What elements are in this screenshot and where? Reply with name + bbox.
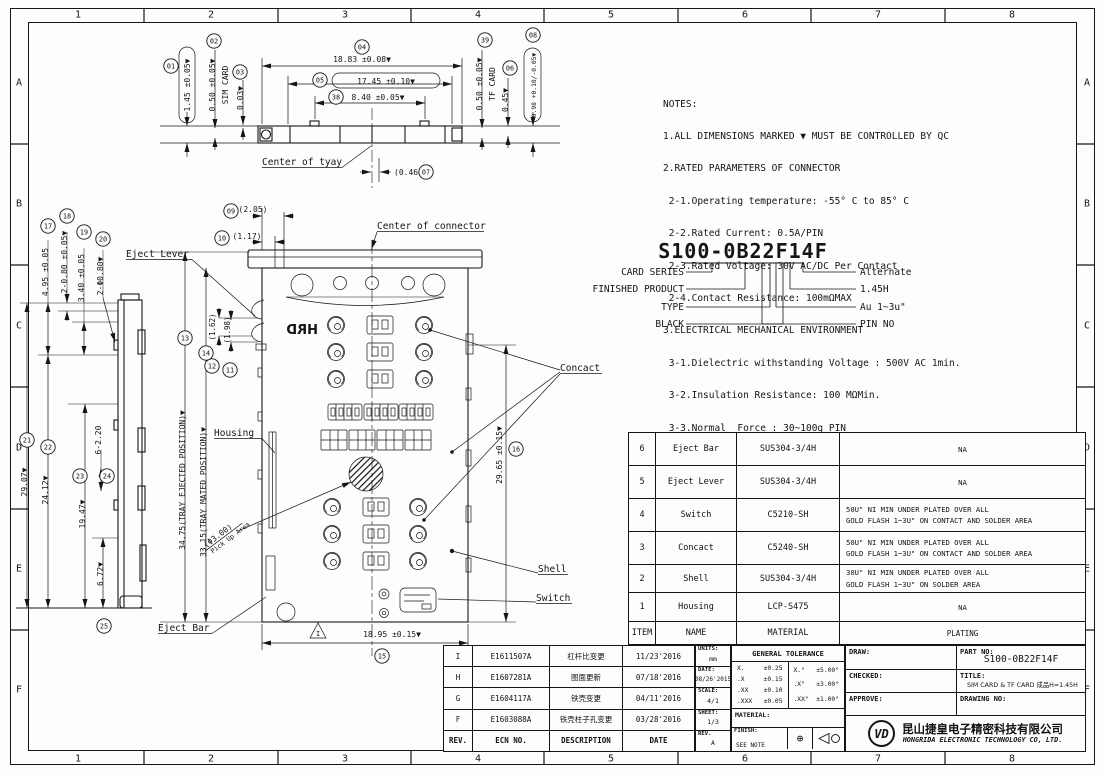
finish-label: FINISH: [734, 729, 758, 735]
date-label: DATE: [698, 668, 715, 674]
units-cell: UNITS: mm [696, 646, 730, 666]
tol-sym: X.° [794, 667, 805, 674]
dim-23-label: 19.47▼ [78, 499, 87, 528]
title-block: DRAW: PART NO: S100-0B22F14F CHECKED: TI… [845, 645, 1086, 752]
balloon-02: 02 [207, 34, 221, 48]
eject-lever-label: Eject Lever [126, 249, 189, 260]
main-view: HRD [126, 205, 602, 656]
rev-ecn: E1607281A [473, 667, 549, 687]
dim-02-label: 0.50 ±0.05▼ [208, 58, 217, 111]
part-no-cell: PART NO: S100-0B22F14F [957, 646, 1085, 669]
top-view: 18.83 ±0.08▼ 17.45 ±0.10▼ 8.40 ±0.05▼ 1.… [160, 47, 560, 188]
balloon-16: 16 [509, 442, 523, 456]
checked-cell: CHECKED: [846, 670, 956, 692]
parts-header-name: NAME [656, 622, 736, 644]
svg-text:04: 04 [358, 44, 366, 52]
balloon-07: 07 [419, 165, 433, 179]
draw-cell: DRAW: [846, 646, 956, 669]
tol-val: ±0.25 [764, 665, 783, 672]
note-line: 2.RATED PARAMETERS OF CONNECTOR [663, 164, 960, 175]
tol-sym: .X [737, 676, 745, 683]
plating-line: GOLD FLASH 1~3U" ON CONTACT AND SOLDER A… [846, 515, 1032, 526]
housing-label: Housing [214, 428, 254, 439]
parts-plating: 50U" NI MIN UNDER PLATED OVER ALL GOLD F… [840, 499, 1085, 531]
parts-header-material: MATERIAL [737, 622, 839, 644]
balloon-11: 11 [223, 363, 237, 377]
switch-label: Switch [536, 593, 570, 604]
tol-sym: X. [737, 665, 745, 672]
tol-sym: .XX° [794, 696, 809, 703]
note-line: 2-2.Rated Current: 0.5A/PIN [663, 229, 960, 240]
svg-text:18: 18 [63, 213, 71, 221]
parts-material: LCP-S475 [737, 593, 839, 621]
rev-date: 03/28'2016 [623, 710, 694, 730]
tol-sym: .XXX [737, 698, 752, 705]
rev-cell: REV. A [696, 731, 730, 751]
parts-plating: 50U" NI MIN UNDER PLATED OVER ALL GOLD F… [840, 532, 1085, 564]
sheet-value: 1/3 [707, 718, 719, 726]
parts-material: SUS304-3/4H [737, 466, 839, 498]
sheet-cell: SHEET: 1/3 [696, 710, 730, 730]
svg-text:03: 03 [236, 69, 244, 77]
note-line: 3-2.Insulation Resistance: 100 MΩMin. [663, 391, 960, 402]
parts-name: Switch [656, 499, 736, 531]
dim-01-label: 1.45 ±0.05▼ [183, 58, 192, 111]
tol-val: ±0.15 [764, 676, 783, 683]
rev-code: I [444, 646, 472, 666]
rev-header-description: DESCRIPTION [550, 731, 622, 751]
rev-description: 杠杆比变更 [550, 646, 622, 666]
parts-material: SUS304-3/4H [737, 433, 839, 465]
drawing-no-cell: DRAWING NO: [957, 693, 1085, 715]
balloon-12: 12 [205, 359, 219, 373]
svg-text:05: 05 [316, 77, 324, 85]
dim-05-label: 17.45 ±0.10▼ [357, 77, 415, 86]
connector-body [262, 268, 468, 622]
parts-name: Eject Bar [656, 433, 736, 465]
datum-target-symbol-icon: ⊕ [788, 728, 813, 749]
dim-13-label: 34.75(TRAY EJECTED POSITION)▼ [178, 410, 187, 550]
parts-item: 4 [629, 499, 655, 531]
svg-text:19: 19 [80, 229, 88, 237]
company-logo-icon: VD [868, 720, 895, 747]
plating-line: 30U" NI MIN UNDER PLATED OVER ALL [846, 567, 989, 578]
rev-ecn: E1611507A [473, 646, 549, 666]
material-label: MATERIAL: [732, 709, 844, 728]
svg-text:25: 25 [100, 623, 108, 631]
balloon-19: 19 [77, 225, 91, 239]
parts-plating: 30U" NI MIN UNDER PLATED OVER ALL GOLD F… [840, 565, 1085, 592]
tray-bezel [248, 250, 482, 268]
title-cell: TITLE: SIM CARD & TF CARD 成品H=1.45H [957, 670, 1085, 692]
svg-text:11: 11 [226, 367, 234, 375]
parts-plating: NA [840, 466, 1085, 498]
svg-text:01: 01 [167, 63, 175, 71]
dim-39-label: 0.50 ±0.05▼ [475, 57, 484, 110]
svg-text:38: 38 [332, 94, 340, 102]
dim-20-label: 2-Φ0.80▼ [96, 257, 105, 296]
dim-10-label: (1.17) [233, 232, 262, 241]
balloon-05: 05 [313, 73, 327, 87]
profile-body [258, 121, 462, 143]
rev-ecn: E1603088A [473, 710, 549, 730]
title-label: TITLE: [957, 670, 985, 680]
drawing-sheet: 1 2 3 4 5 6 7 8 1 2 3 4 5 6 7 8 A B C D … [0, 0, 1105, 774]
note-line: 2-1.Operating temperature: -55° C to 85°… [663, 197, 960, 208]
dim-21-label: 29.07▼ [20, 467, 29, 496]
tolerance-title: GENERAL TOLERANCE [732, 646, 844, 662]
balloon-15: 15 [375, 649, 389, 663]
balloon-21: 21 [20, 433, 34, 447]
svg-text:12: 12 [208, 363, 216, 371]
approve-cell: APPROVE: [846, 693, 956, 715]
parts-plating: NA [840, 433, 1085, 465]
center-of-connector-label: Center of connector [377, 221, 486, 232]
dim-16-label: 29.65 ±0.15▼ [495, 426, 504, 484]
svg-text:06: 06 [506, 65, 514, 73]
rev-ecn: E1604117A [473, 688, 549, 708]
rev-code: G [444, 688, 472, 708]
parts-material: SUS304-3/4H [737, 565, 839, 592]
balloon-06: 06 [503, 61, 517, 75]
svg-text:07: 07 [422, 169, 430, 177]
plating-line: 50U" NI MIN UNDER PLATED OVER ALL [846, 537, 989, 548]
tol-val: ±5.00° [816, 667, 839, 674]
note-line: 3-1.Dielectric withstanding Voltage : 50… [663, 359, 960, 370]
svg-text:21: 21 [23, 437, 31, 445]
tol-val: ±0.05 [764, 698, 783, 705]
dim-18-label: 2-0.80 ±0.05▼ [60, 231, 69, 294]
svg-text:10: 10 [218, 235, 226, 243]
note-line: 2-4.Contact Resistance: 100mΩMAX [663, 294, 960, 305]
rev-date: 04/11'2016 [623, 688, 694, 708]
title-value: SIM CARD & TF CARD 成品H=1.45H [967, 680, 1078, 689]
rev-header-rev: REV. [444, 731, 472, 751]
balloon-22: 22 [41, 440, 55, 454]
rev-header-ecn: ECN NO. [473, 731, 549, 751]
dim-15-label: 18.95 ±0.15▼ [363, 630, 421, 639]
note-line: 1.ALL DIMENSIONS MARKED ▼ MUST BE CONTRO… [663, 132, 960, 143]
parts-name: Eject Lever [656, 466, 736, 498]
parts-item: 5 [629, 466, 655, 498]
dim-38-label: 8.40 ±0.05▼ [352, 93, 405, 102]
scale-cell: SCALE: 4/1 [696, 688, 730, 708]
dim-14-label: 33.15(TRAY MATED POSITION)▼ [199, 427, 208, 557]
finish-cell: FINISH: SEE NOTE [732, 728, 788, 749]
svg-text:09: 09 [227, 208, 235, 216]
balloon-25: 25 [97, 619, 111, 633]
parts-material: C5210-SH [737, 499, 839, 531]
balloon-20: 20 [96, 232, 110, 246]
balloon-39: 39 [478, 33, 492, 47]
svg-text:I: I [316, 630, 320, 638]
checked-label: CHECKED: [846, 670, 883, 680]
company-name-en: HONGRIDA ELECTRONIC TECHNOLOGY CO, LTD. [903, 736, 1063, 744]
dim-06-label: 0.45▼ [501, 88, 510, 112]
side-view: 4.95 ±0.05 2-0.80 ±0.05▼ 3.40 ±0.05 2-Φ0… [16, 231, 152, 608]
balloon-24: 24 [100, 469, 114, 483]
dim-12-label: (1.62) [208, 313, 217, 340]
dim-02-note: SIM CARD [221, 66, 230, 105]
note-line: 3.ELECTRICAL MECHANICAL ENVIRONMENT [663, 326, 960, 337]
concact-label: Concact [560, 363, 600, 374]
units-value: mm [709, 655, 717, 663]
tolerance-angle-col: X.°±5.00° .X°±3.00° .XX°±1.00° [789, 662, 845, 708]
center-of-tray-label: Center of tyay [262, 157, 342, 168]
tolerance-linear-col: X.±0.25 .X±0.15 .XX±0.10 .XXX±0.05 [732, 662, 789, 708]
draw-label: DRAW: [846, 646, 870, 656]
rev-description: 图面更新 [550, 667, 622, 687]
dim-08-label: 0.98 +0.10/-0.05▼ [531, 53, 538, 118]
scale-label: SCALE: [698, 689, 718, 695]
svg-text:02: 02 [210, 38, 218, 46]
parts-plating: NA [840, 593, 1085, 621]
svg-text:22: 22 [44, 444, 52, 452]
balloon-14: 14 [199, 346, 213, 360]
dim-22-label: 24.12▼ [41, 475, 50, 504]
dim-11-label: (1.98) [223, 316, 232, 343]
dim-19-label: 3.40 ±0.05 [77, 254, 86, 302]
dim-04-label: 18.83 ±0.08▼ [333, 55, 391, 64]
balloon-03: 03 [233, 65, 247, 79]
dim-17-label: 4.95 ±0.05 [41, 248, 50, 296]
svg-text:08: 08 [529, 32, 537, 40]
dim-25-label: 6.72▼ [96, 562, 105, 586]
balloon-09: 09 [224, 204, 238, 218]
rev-description: 铁壳柱子孔变更 [550, 710, 622, 730]
plating-line: GOLD FLASH 1~3U" ON SOLDER AREA [846, 579, 980, 590]
parts-material: C5240-SH [737, 532, 839, 564]
revision-triangle: I [310, 623, 326, 638]
balloon-23: 23 [73, 469, 87, 483]
company-band: VD 昆山捷皇电子精密科技有限公司 HONGRIDA ELECTRONIC TE… [846, 716, 1085, 751]
dim-39-note: TF CARD [488, 67, 497, 101]
rev-header-date: DATE [623, 731, 694, 751]
tolerance-block: GENERAL TOLERANCE X.±0.25 .X±0.15 .XX±0.… [731, 645, 845, 752]
balloon-17: 17 [41, 219, 55, 233]
parts-header-plating: PLATING [840, 622, 1085, 644]
rev-value: A [711, 739, 715, 747]
parts-name: Housing [656, 593, 736, 621]
parts-item: 6 [629, 433, 655, 465]
units-label: UNITS: [698, 647, 718, 653]
svg-text:16: 16 [512, 446, 520, 454]
tol-sym: .X° [794, 681, 805, 688]
part-no-value: S100-0B22F14F [957, 654, 1085, 665]
rev-code: F [444, 710, 472, 730]
rev-date: 07/18'2016 [623, 667, 694, 687]
parts-item: 2 [629, 565, 655, 592]
svg-text:13: 13 [181, 335, 189, 343]
tol-val: ±3.00° [816, 681, 839, 688]
svg-text:17: 17 [44, 223, 52, 231]
svg-text:39: 39 [481, 37, 489, 45]
note-line: NOTES: [663, 100, 960, 111]
tol-sym: .XX [737, 687, 748, 694]
svg-text:23: 23 [76, 473, 84, 481]
rev-code: H [444, 667, 472, 687]
dim-09-label: (2.05) [239, 205, 268, 214]
scale-value: 4/1 [707, 697, 719, 705]
dim-03-label: 0.03▼ [236, 86, 245, 110]
balloon-18: 18 [60, 209, 74, 223]
dim-24-label: 6-2.20 [94, 425, 103, 454]
parts-item: 1 [629, 593, 655, 621]
balloon-10: 10 [215, 231, 229, 245]
rev-description: 铁壳变更 [550, 688, 622, 708]
date-cell: DATE: 08/26'2015 [696, 667, 730, 687]
info-column: UNITS: mm DATE: 08/26'2015 SCALE: 4/1 SH… [695, 645, 731, 752]
parts-name: Shell [656, 565, 736, 592]
finish-value: SEE NOTE [736, 742, 765, 749]
svg-text:24: 24 [103, 473, 111, 481]
balloon-08: 08 [526, 28, 540, 42]
rev-date: 11/23'2016 [623, 646, 694, 666]
side-body [114, 294, 146, 608]
approve-label: APPROVE: [846, 693, 883, 703]
tol-val: ±1.00° [816, 696, 839, 703]
projection-symbol-icon [813, 728, 844, 749]
note-line: 2-3.Rated Voltage: 30V AC/DC Per Contact [663, 262, 960, 273]
revision-table: I E1611507A 杠杆比变更 11/23'2016 H E1607281A… [443, 645, 695, 752]
balloon-01: 01 [164, 59, 178, 73]
company-name-cn: 昆山捷皇电子精密科技有限公司 [902, 723, 1063, 737]
rev-label: REV. [698, 732, 711, 738]
parts-name: Concact [656, 532, 736, 564]
svg-text:20: 20 [99, 236, 107, 244]
shell-label: Shell [538, 564, 567, 575]
parts-item: 3 [629, 532, 655, 564]
date-value: 08/26'2015 [696, 676, 730, 683]
plating-line: GOLD FLASH 1~3U" ON CONTACT AND SOLDER A… [846, 548, 1032, 559]
housing-logo-text: HRD [286, 323, 318, 338]
parts-table: 6 Eject Bar SUS304-3/4H NA 5 Eject Lever… [628, 432, 1086, 645]
sheet-label: SHEET: [698, 711, 718, 717]
parts-header-item: ITEM [629, 622, 655, 644]
plating-line: 50U" NI MIN UNDER PLATED OVER ALL [846, 504, 989, 515]
svg-text:14: 14 [202, 350, 210, 358]
drawing-no-label: DRAWING NO: [957, 693, 1006, 703]
eject-lever-arcs [252, 300, 266, 350]
balloon-38: 38 [329, 90, 343, 104]
tol-val: ±0.10 [764, 687, 783, 694]
switch-part [400, 588, 436, 612]
eject-bar-label: Eject Bar [158, 623, 210, 634]
balloon-04: 04 [355, 40, 369, 54]
svg-text:15: 15 [378, 653, 386, 661]
balloon-13: 13 [178, 331, 192, 345]
pickup-area-circle [349, 457, 383, 491]
